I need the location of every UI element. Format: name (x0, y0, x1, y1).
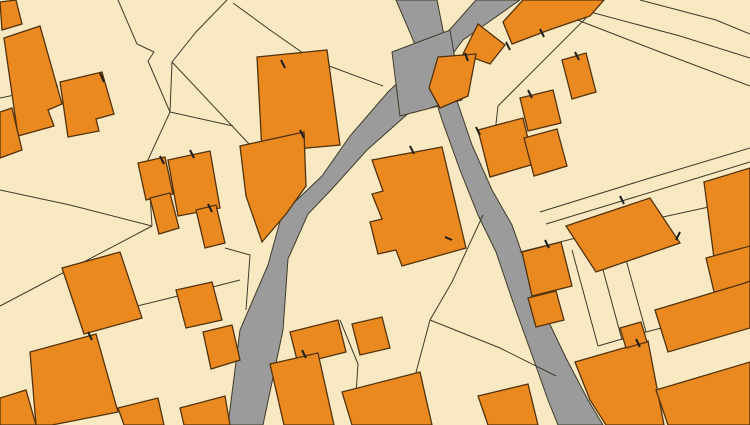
building[interactable] (520, 90, 561, 131)
cadastral-map-viewport[interactable] (0, 0, 750, 425)
cadastral-map[interactable] (0, 0, 750, 425)
